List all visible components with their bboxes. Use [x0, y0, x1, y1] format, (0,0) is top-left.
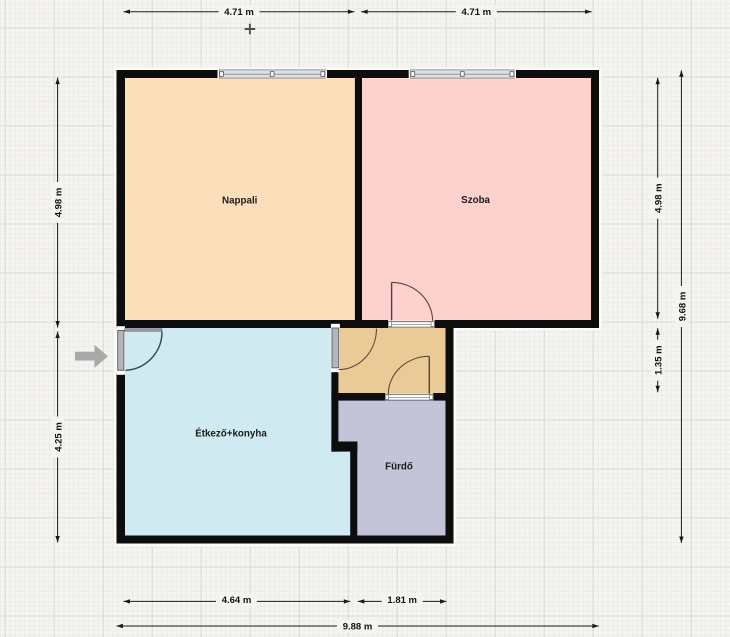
svg-text:4.71 m: 4.71 m [224, 7, 254, 18]
svg-text:9.68 m: 9.68 m [677, 292, 688, 322]
svg-text:4.71 m: 4.71 m [462, 7, 492, 18]
svg-text:4.25 m: 4.25 m [54, 422, 65, 452]
svg-text:Nappali: Nappali [222, 196, 258, 207]
svg-text:9.88 m: 9.88 m [343, 622, 373, 633]
svg-text:4.98 m: 4.98 m [54, 188, 65, 218]
svg-text:Étkező+konyha: Étkező+konyha [195, 428, 267, 440]
svg-text:Szoba: Szoba [461, 195, 490, 206]
svg-text:4.98 m: 4.98 m [654, 183, 665, 213]
svg-text:1.81 m: 1.81 m [387, 595, 417, 606]
svg-text:Fürdő: Fürdő [385, 461, 413, 472]
svg-text:1.35 m: 1.35 m [654, 345, 665, 375]
svg-text:4.64 m: 4.64 m [222, 595, 252, 606]
